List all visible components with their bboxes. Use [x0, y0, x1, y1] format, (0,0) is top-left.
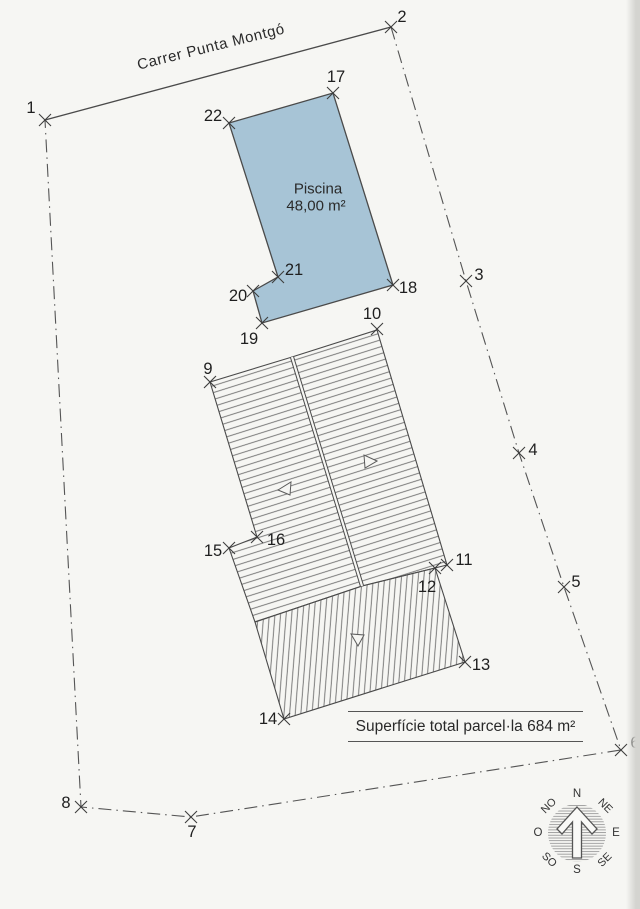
compass-label: NE: [595, 796, 614, 815]
pool-area-label: 48,00 m²: [286, 198, 345, 215]
point-number-label: 3: [474, 266, 483, 284]
point-number-label: 11: [455, 551, 472, 569]
point-number-label: 19: [240, 330, 258, 348]
point-number-label: 12: [418, 578, 436, 596]
parcel-total-area-box: Superfície total parcel·la 684 m²: [348, 711, 583, 742]
point-number-label: 13: [472, 656, 490, 674]
point-number-label: 2: [397, 8, 406, 26]
point-number-label: 17: [327, 68, 345, 86]
point-number-label: 1: [26, 99, 35, 117]
point-number-label: 20: [229, 287, 247, 305]
compass-label: S: [573, 864, 581, 876]
point-number-label: 16: [267, 531, 285, 549]
compass-label: SE: [596, 851, 615, 870]
point-number-label: 10: [363, 305, 381, 323]
point-number-label: 22: [204, 107, 222, 125]
compass-label: E: [612, 827, 620, 839]
point-number-label: 9: [203, 360, 212, 378]
compass-label: O: [534, 827, 543, 839]
pool-name-label: Piscina: [294, 181, 342, 198]
point-number-label: 21: [285, 261, 303, 279]
scan-edge-shading: [626, 0, 640, 909]
point-number-label: 7: [187, 823, 196, 841]
point-number-label: 14: [259, 710, 277, 728]
point-number-label: 18: [399, 279, 417, 297]
point-number-label: 15: [204, 542, 222, 560]
compass-label: N: [573, 788, 581, 800]
point-number-label: 5: [571, 573, 580, 591]
point-number-label: 4: [528, 441, 537, 459]
point-number-label: 8: [61, 794, 70, 812]
site-plan-canvas: 12345678910111213141516171819202122NNEES…: [0, 0, 640, 909]
site-plan-drawing: 12345678910111213141516171819202122NNEES…: [0, 0, 640, 909]
